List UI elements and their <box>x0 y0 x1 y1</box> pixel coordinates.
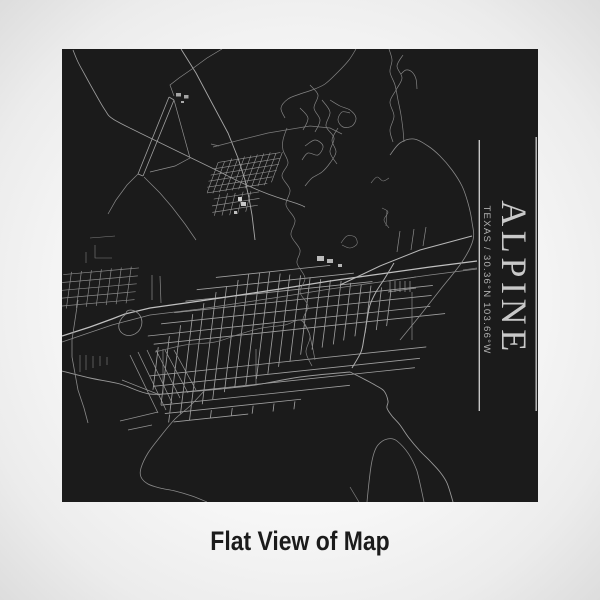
svg-text:ALPINE: ALPINE <box>494 200 534 356</box>
svg-text:TEXAS / 30.36°N 103.66°W: TEXAS / 30.36°N 103.66°W <box>481 205 492 354</box>
